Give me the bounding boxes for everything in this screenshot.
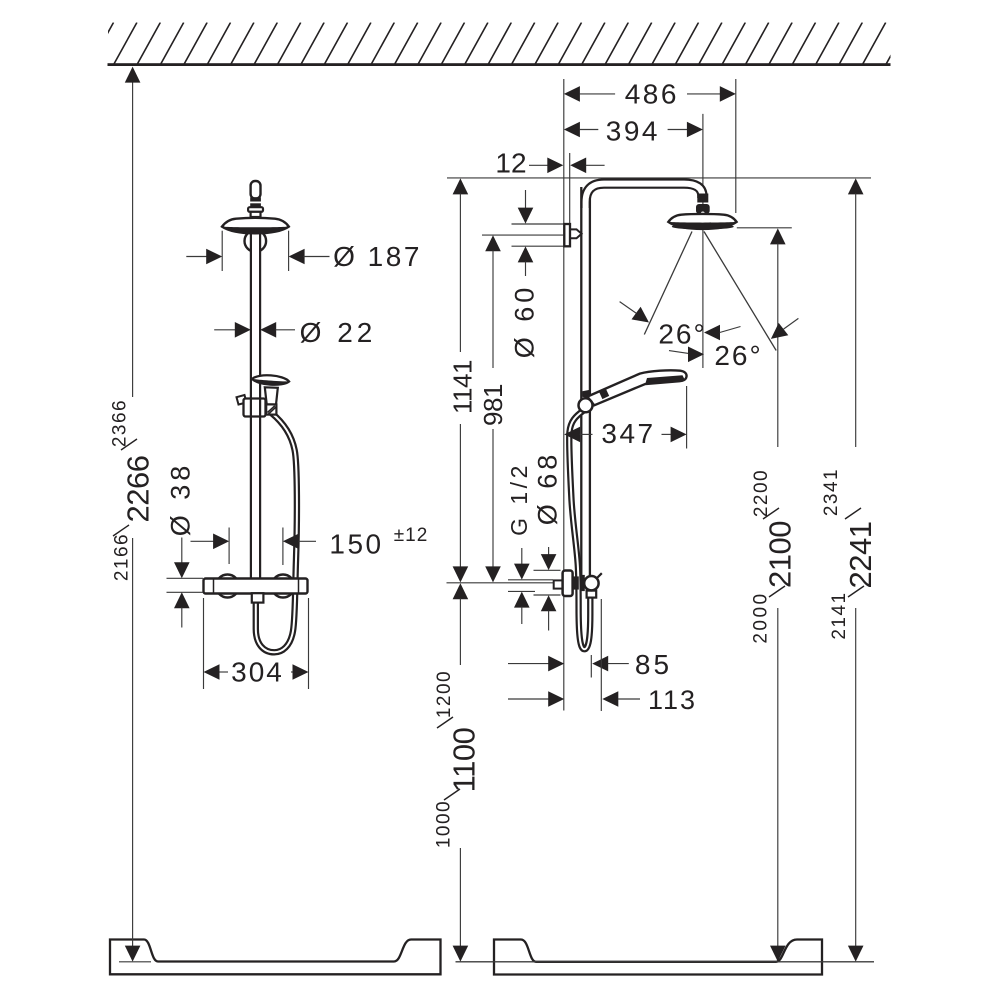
svg-text:2241: 2241 — [843, 522, 878, 589]
svg-text:26°: 26° — [658, 319, 706, 350]
svg-text:85: 85 — [635, 649, 672, 680]
svg-text:347: 347 — [601, 418, 655, 449]
svg-text:±12: ±12 — [394, 525, 429, 546]
svg-text:2000: 2000 — [751, 591, 772, 643]
svg-text:1000: 1000 — [434, 800, 455, 848]
svg-text:1100: 1100 — [447, 727, 482, 792]
svg-text:1141: 1141 — [448, 360, 478, 414]
svg-text:Ø 187: Ø 187 — [333, 241, 422, 272]
svg-text:Ø 68: Ø 68 — [533, 451, 563, 526]
svg-text:2366: 2366 — [110, 399, 131, 447]
svg-text:G 1/2: G 1/2 — [506, 462, 532, 536]
svg-text:486: 486 — [625, 79, 679, 110]
svg-text:Ø 60: Ø 60 — [510, 284, 540, 359]
svg-text:304: 304 — [231, 657, 284, 688]
svg-text:Ø 22: Ø 22 — [300, 317, 377, 348]
svg-text:2166: 2166 — [112, 533, 133, 581]
svg-text:394: 394 — [606, 116, 660, 147]
svg-text:1200: 1200 — [434, 670, 455, 718]
svg-text:2141: 2141 — [829, 591, 850, 639]
svg-text:2200: 2200 — [751, 469, 772, 517]
svg-text:2100: 2100 — [763, 521, 798, 588]
svg-text:113: 113 — [648, 685, 697, 715]
svg-text:150: 150 — [329, 529, 383, 560]
svg-text:26°: 26° — [714, 340, 762, 371]
svg-text:2266: 2266 — [121, 456, 156, 523]
svg-text:Ø 38: Ø 38 — [166, 462, 196, 537]
svg-text:981: 981 — [478, 384, 508, 426]
svg-text:12: 12 — [495, 148, 526, 179]
svg-text:2341: 2341 — [821, 468, 842, 516]
